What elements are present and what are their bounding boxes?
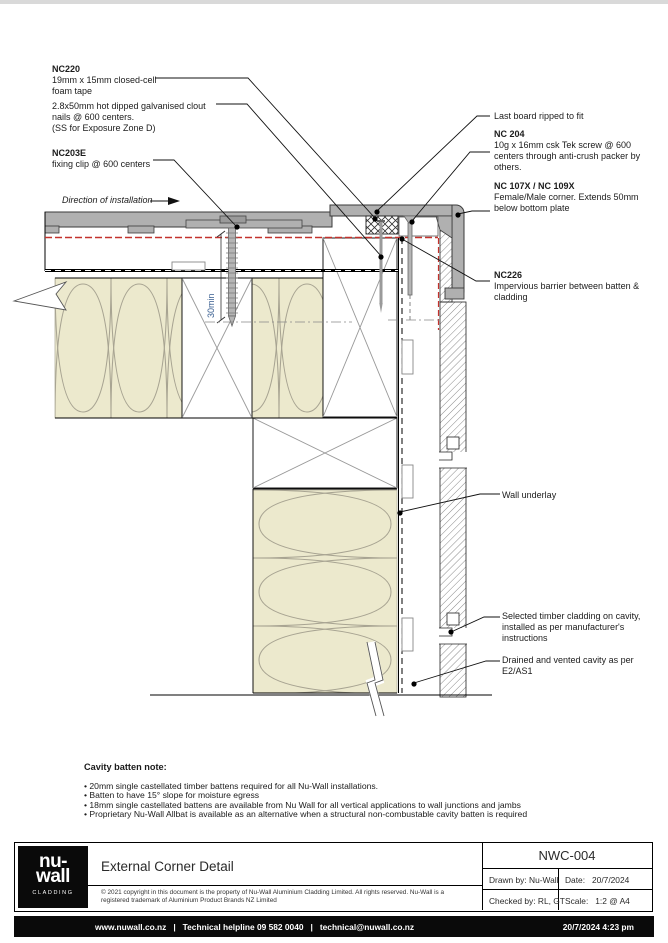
footer-contact: www.nuwall.co.nz | Technical helpline 09… [95, 922, 414, 932]
label-line: 10g x 16mm csk Tek screw @ 600 [494, 140, 640, 151]
footer-bar: www.nuwall.co.nz | Technical helpline 09… [14, 916, 654, 937]
date-value: 20/7/2024 [592, 875, 629, 885]
label-nc107x-code: NC 107X / NC 109X [494, 181, 639, 192]
label-last-board: Last board ripped to fit [494, 111, 584, 122]
logo-line2: wall [36, 869, 70, 884]
checked-by-label: Checked by: [489, 896, 536, 906]
copyright-text: © 2021 copyright in this document is the… [101, 889, 473, 905]
drawing-sheet: 30min [0, 0, 668, 943]
notes-title: Cavity batten note: [84, 763, 527, 773]
date-label: Date: [565, 875, 585, 885]
nuwall-logo: nu- wall CLADDING [18, 846, 88, 908]
title-divider [88, 885, 482, 886]
dim-30min-text: 30min [206, 293, 216, 318]
label-wall-underlay: Wall underlay [502, 490, 556, 501]
drawing-number: NWC-004 [482, 843, 652, 869]
title-block: nu- wall CLADDING External Corner Detail… [14, 842, 653, 912]
label-line: fixing clip @ 600 centers [52, 159, 150, 170]
label-line: 19mm x 15mm closed-cell [52, 75, 157, 86]
label-timber-cladding: Selected timber cladding on cavity, inst… [502, 611, 640, 644]
label-drained-cavity: Drained and vented cavity as per E2/AS1 [502, 655, 634, 677]
label-line: others. [494, 162, 640, 173]
logo-subtitle: CLADDING [32, 886, 73, 901]
label-line: E2/AS1 [502, 666, 634, 677]
label-line: Selected timber cladding on cavity, [502, 611, 640, 622]
label-nc203e-code: NC203E [52, 148, 150, 159]
label-line: Drained and vented cavity as per [502, 655, 634, 666]
title-block-divider [482, 889, 652, 890]
label-line: nails @ 600 centers. [52, 112, 206, 123]
label-nc107x: NC 107X / NC 109X Female/Male corner. Ex… [494, 181, 639, 214]
label-nc226: NC226 Impervious barrier between batten … [494, 270, 639, 303]
label-nc204-code: NC 204 [494, 129, 640, 140]
label-line: 2.8x50mm hot dipped galvanised clout [52, 101, 206, 112]
label-line: cladding [494, 292, 639, 303]
scale-cell: Scale: 1:2 @ A4 [565, 896, 630, 906]
checked-by-value: RL, GT [538, 896, 565, 906]
label-line: below bottom plate [494, 203, 639, 214]
direction-arrow-icon [150, 197, 180, 205]
scale-value: 1:2 @ A4 [595, 896, 630, 906]
scale-label: Scale: [565, 896, 588, 906]
drawn-by-cell: Drawn by: Nu-Wall [489, 875, 559, 885]
drawing-title: External Corner Detail [101, 859, 234, 874]
label-nc220: NC220 19mm x 15mm closed-cell foam tape [52, 64, 157, 97]
cavity-batten-notes: Cavity batten note: 20mm single castella… [84, 763, 527, 820]
label-direction-of-installation: Direction of installation [62, 195, 153, 206]
label-clout-nails: 2.8x50mm hot dipped galvanised clout nai… [52, 101, 206, 134]
notes-bullet: Proprietary Nu-Wall Allbat is available … [84, 810, 527, 820]
label-line: (SS for Exposure Zone D) [52, 123, 206, 134]
label-line: foam tape [52, 86, 157, 97]
label-line: Impervious barrier between batten & [494, 281, 639, 292]
label-nc220-code: NC220 [52, 64, 157, 75]
label-line: centers through anti-crush packer by [494, 151, 640, 162]
label-line: installed as per manufacturer's [502, 622, 640, 633]
footer-timestamp: 20/7/2024 4:23 pm [563, 922, 634, 932]
date-cell: Date: 20/7/2024 [565, 875, 629, 885]
drawn-by-label: Drawn by: [489, 875, 527, 885]
label-line: Female/Male corner. Extends 50mm [494, 192, 639, 203]
checked-by-cell: Checked by: RL, GT [489, 896, 565, 906]
label-line: instructions [502, 633, 640, 644]
anti-crush-packer [399, 217, 438, 236]
label-nc226-code: NC226 [494, 270, 639, 281]
drawn-by-value: Nu-Wall [529, 875, 558, 885]
label-nc204: NC 204 10g x 16mm csk Tek screw @ 600 ce… [494, 129, 640, 173]
label-nc203e: NC203E fixing clip @ 600 centers [52, 148, 150, 170]
wall-underlay-vertical [399, 238, 414, 693]
